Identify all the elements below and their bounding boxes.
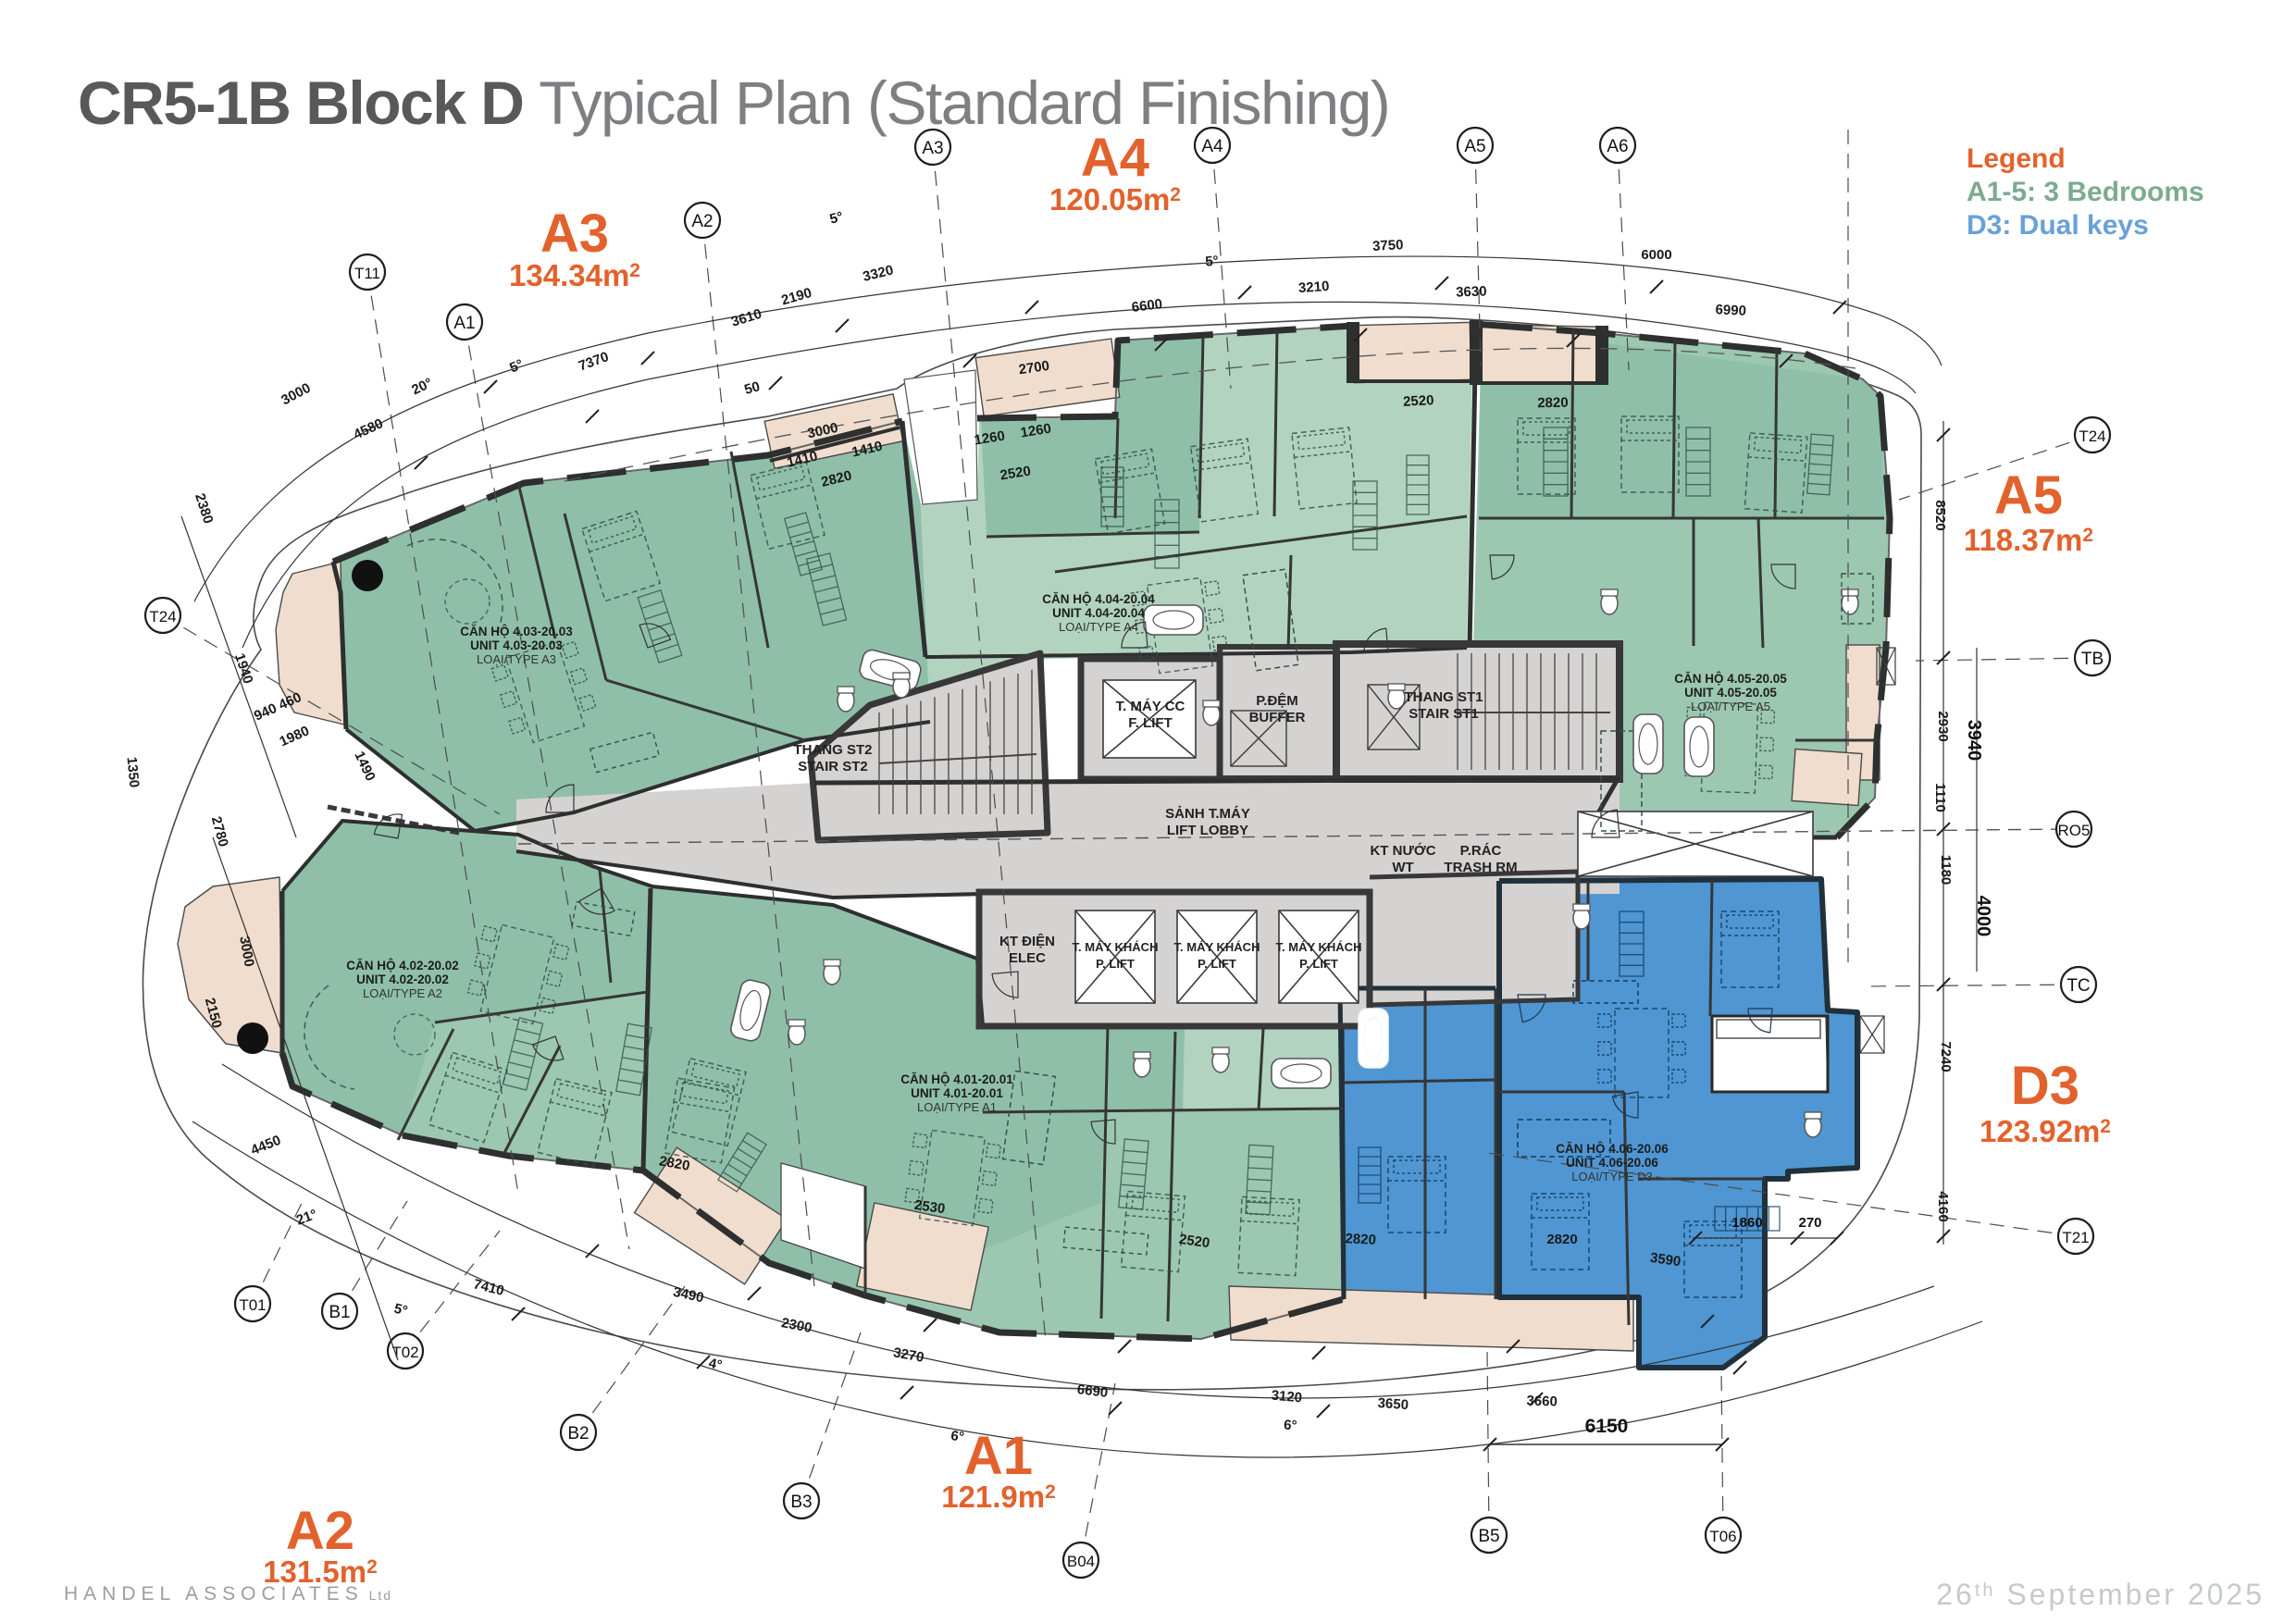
- svg-text:CĂN HỘ 4.01-20.01: CĂN HỘ 4.01-20.01: [900, 1072, 1013, 1086]
- svg-text:6990: 6990: [1715, 302, 1746, 319]
- svg-text:SẢNH T.MÁY: SẢNH T.MÁY: [1165, 806, 1250, 822]
- svg-text:BUFFER: BUFFER: [1249, 710, 1306, 725]
- svg-text:2820: 2820: [1345, 1231, 1376, 1248]
- svg-text:1860: 1860: [1731, 1215, 1762, 1231]
- svg-text:T21: T21: [2062, 1229, 2089, 1246]
- svg-text:134.34m2: 134.34m2: [509, 258, 640, 292]
- svg-text:HANDEL ASSOCIATES Ltd: HANDEL ASSOCIATES Ltd: [64, 1583, 392, 1604]
- svg-text:T. MÁY KHÁCH: T. MÁY KHÁCH: [1174, 940, 1260, 954]
- svg-text:B2: B2: [567, 1424, 589, 1443]
- svg-text:P.ĐỆM: P.ĐỆM: [1256, 692, 1298, 709]
- svg-text:THANG ST2: THANG ST2: [793, 742, 872, 758]
- svg-text:A3: A3: [540, 204, 609, 264]
- svg-text:UNIT 4.01-20.01: UNIT 4.01-20.01: [911, 1086, 1003, 1100]
- svg-text:P. LIFT: P. LIFT: [1096, 957, 1135, 971]
- svg-text:2820: 2820: [1546, 1232, 1577, 1247]
- svg-text:LOẠI/TYPE A1: LOẠI/TYPE A1: [917, 1100, 997, 1114]
- svg-text:2520: 2520: [1403, 392, 1434, 410]
- svg-text:LOẠI/TYPE A4: LOẠI/TYPE A4: [1059, 620, 1138, 634]
- svg-text:T24: T24: [149, 608, 176, 626]
- svg-text:UNIT 4.06-20.06: UNIT 4.06-20.06: [1566, 1156, 1658, 1170]
- svg-text:D3: D3: [2011, 1056, 2079, 1116]
- svg-text:CĂN HỘ 4.04-20.04: CĂN HỘ 4.04-20.04: [1042, 592, 1155, 606]
- svg-text:TB: TB: [2081, 650, 2104, 669]
- svg-text:T. MÁY KHÁCH: T. MÁY KHÁCH: [1276, 940, 1362, 954]
- svg-text:T06: T06: [1709, 1528, 1736, 1545]
- svg-text:KT NƯỚC: KT NƯỚC: [1370, 842, 1435, 859]
- svg-text:KT ĐIỆN: KT ĐIỆN: [999, 933, 1055, 949]
- svg-text:T. MÁY CC: T. MÁY CC: [1116, 699, 1185, 714]
- svg-text:P. LIFT: P. LIFT: [1299, 957, 1338, 971]
- svg-text:STAIR ST1: STAIR ST1: [1409, 706, 1479, 722]
- svg-text:CR5-1B Block D Typical Plan (S: CR5-1B Block D Typical Plan (Standard Fi…: [78, 68, 1389, 137]
- svg-text:B3: B3: [790, 1493, 812, 1512]
- svg-text:118.37m2: 118.37m2: [1964, 523, 2093, 557]
- svg-text:T01: T01: [239, 1296, 266, 1314]
- svg-text:3120: 3120: [1271, 1388, 1303, 1406]
- svg-text:B04: B04: [1067, 1553, 1095, 1570]
- svg-text:CĂN HỘ 4.03-20.03: CĂN HỘ 4.03-20.03: [460, 625, 573, 638]
- svg-text:T11: T11: [354, 265, 380, 282]
- svg-text:A6: A6: [1607, 137, 1628, 156]
- svg-text:B1: B1: [329, 1303, 350, 1322]
- svg-text:A2: A2: [691, 212, 713, 231]
- svg-text:P. LIFT: P. LIFT: [1198, 957, 1236, 971]
- svg-text:LOẠI/TYPE D3: LOẠI/TYPE D3: [1571, 1170, 1652, 1183]
- svg-text:123.92m2: 123.92m2: [1980, 1114, 2111, 1148]
- svg-text:6°: 6°: [1284, 1418, 1297, 1434]
- svg-text:F. LIFT: F. LIFT: [1128, 715, 1173, 731]
- svg-text:3650: 3650: [1377, 1395, 1409, 1413]
- svg-text:1350: 1350: [124, 756, 143, 788]
- svg-text:TC: TC: [2066, 976, 2090, 996]
- svg-text:P.RÁC: P.RÁC: [1460, 843, 1502, 859]
- svg-text:6000: 6000: [1641, 247, 1671, 263]
- svg-text:CĂN HỘ 4.02-20.02: CĂN HỘ 4.02-20.02: [346, 959, 459, 973]
- svg-text:A5: A5: [1464, 137, 1485, 156]
- svg-text:T02: T02: [391, 1344, 418, 1361]
- svg-text:UNIT 4.04-20.04: UNIT 4.04-20.04: [1052, 606, 1145, 620]
- svg-text:LOẠI/TYPE A3: LOẠI/TYPE A3: [477, 652, 556, 666]
- svg-text:3210: 3210: [1297, 279, 1329, 296]
- svg-text:5°: 5°: [1205, 253, 1220, 269]
- svg-text:1110: 1110: [1932, 783, 1948, 812]
- svg-text:THANG ST1: THANG ST1: [1404, 689, 1483, 705]
- svg-text:121.9m2: 121.9m2: [941, 1480, 1056, 1514]
- svg-text:CĂN HỘ 4.05-20.05: CĂN HỘ 4.05-20.05: [1674, 672, 1787, 686]
- svg-text:1180: 1180: [1938, 855, 1954, 886]
- svg-text:7240: 7240: [1938, 1041, 1954, 1072]
- svg-text:UNIT 4.05-20.05: UNIT 4.05-20.05: [1684, 686, 1777, 700]
- svg-text:RO5: RO5: [2058, 822, 2091, 839]
- svg-text:A3: A3: [922, 139, 943, 158]
- svg-text:A5: A5: [1994, 465, 2063, 526]
- svg-text:CĂN HỘ 4.06-20.06: CĂN HỘ 4.06-20.06: [1556, 1142, 1669, 1156]
- svg-text:TRASH RM: TRASH RM: [1444, 860, 1517, 875]
- svg-text:A4: A4: [1201, 137, 1223, 156]
- svg-text:2930: 2930: [1935, 711, 1951, 741]
- svg-text:UNIT 4.03-20.03: UNIT 4.03-20.03: [470, 638, 563, 652]
- svg-text:A1: A1: [964, 1426, 1033, 1486]
- svg-text:UNIT 4.02-20.02: UNIT 4.02-20.02: [356, 973, 449, 986]
- svg-text:A1-5: 3 Bedrooms: A1-5: 3 Bedrooms: [1967, 177, 2204, 207]
- svg-text:4160: 4160: [1935, 1191, 1951, 1221]
- svg-text:6150: 6150: [1585, 1416, 1629, 1437]
- svg-text:3660: 3660: [1526, 1393, 1558, 1409]
- svg-text:8520: 8520: [1932, 500, 1948, 530]
- svg-text:2820: 2820: [1537, 395, 1569, 412]
- svg-text:D3: Dual keys: D3: Dual keys: [1967, 210, 2149, 241]
- svg-text:3750: 3750: [1372, 237, 1404, 254]
- svg-text:WT: WT: [1392, 860, 1413, 875]
- svg-text:A2: A2: [286, 1501, 354, 1561]
- svg-text:ELEC: ELEC: [1009, 950, 1046, 966]
- svg-text:6°: 6°: [949, 1428, 965, 1445]
- svg-text:T. MÁY KHÁCH: T. MÁY KHÁCH: [1073, 940, 1159, 954]
- svg-text:3630: 3630: [1456, 283, 1487, 300]
- svg-text:LOẠI/TYPE A2: LOẠI/TYPE A2: [363, 986, 442, 1000]
- svg-text:4000: 4000: [1973, 896, 1993, 937]
- svg-text:A1: A1: [453, 314, 475, 333]
- svg-text:LIFT LOBBY: LIFT LOBBY: [1167, 823, 1248, 838]
- svg-text:B5: B5: [1478, 1527, 1499, 1546]
- svg-text:T24: T24: [2079, 427, 2105, 445]
- svg-text:STAIR ST2: STAIR ST2: [798, 759, 868, 774]
- svg-text:120.05m2: 120.05m2: [1049, 182, 1181, 217]
- svg-text:LOẠI/TYPE A5: LOẠI/TYPE A5: [1691, 700, 1770, 713]
- svg-text:3940: 3940: [1964, 720, 1984, 762]
- svg-text:270: 270: [1798, 1215, 1821, 1231]
- svg-text:Legend: Legend: [1967, 143, 2066, 174]
